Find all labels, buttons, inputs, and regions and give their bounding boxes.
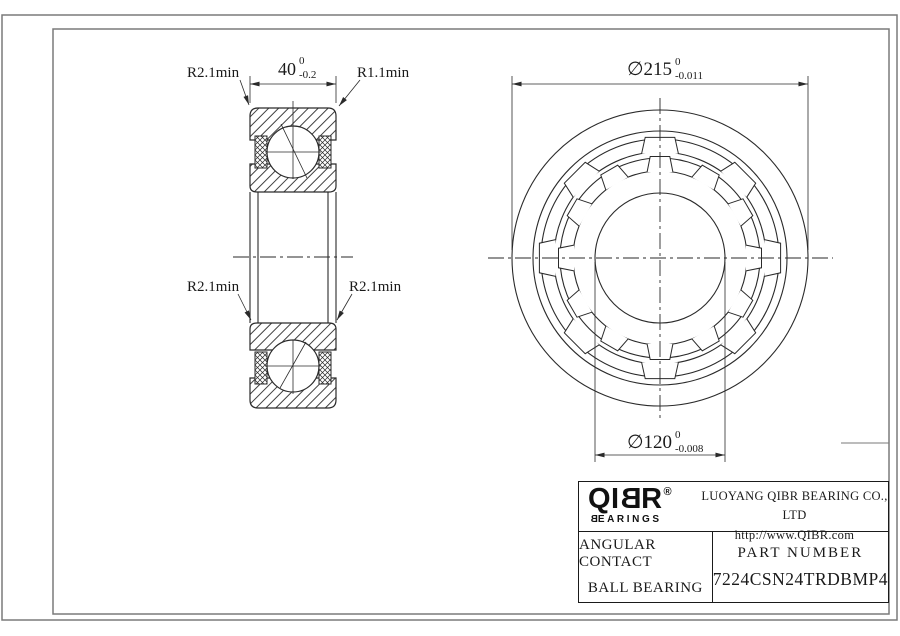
- cage-bottom-left: [255, 352, 267, 384]
- logo-cell: QIBR® BEARINGS: [579, 482, 701, 531]
- width-dimension: 40 0 -0.2: [250, 55, 336, 103]
- qibr-logo-sub: BEARINGS: [588, 514, 701, 525]
- od-dim-tol-lower: -0.011: [675, 70, 703, 82]
- label-r-mid-left: R2.1min: [187, 279, 240, 295]
- drawing-sheet: 40 0 -0.2 R2.1min R1.1min R2.1min R2.1mi…: [0, 0, 900, 636]
- part-number-label: PART NUMBER: [738, 545, 864, 562]
- part-number-value: 7224CSN24TRDBMP4: [713, 569, 888, 590]
- cage-pocket: [601, 165, 628, 190]
- title-block-top-row: QIBR® BEARINGS LUOYANG QIBR BEARING CO.,…: [579, 482, 888, 532]
- od-dim-value: ∅215: [627, 59, 672, 80]
- cage-pocket: [692, 326, 719, 351]
- width-dim-tol-lower: -0.2: [299, 69, 316, 81]
- width-dim-value: 40: [278, 59, 296, 79]
- cage-pocket: [721, 319, 756, 354]
- od-dim-tol-upper: 0: [675, 56, 681, 68]
- cage-pocket: [564, 162, 599, 197]
- label-r-mid-right: R2.1min: [349, 279, 402, 295]
- cage-pocket: [728, 290, 753, 317]
- bore-lines: [250, 192, 336, 323]
- cage-pocket: [721, 162, 756, 197]
- bore-dim-tol-upper: 0: [675, 429, 681, 441]
- cage-pocket: [728, 199, 753, 226]
- product-type-line2: BALL BEARING: [588, 580, 703, 597]
- product-cell: ANGULAR CONTACT BALL BEARING: [579, 532, 713, 602]
- label-r-top-left: R2.1min: [187, 65, 240, 81]
- part-number-cell: PART NUMBER 7224CSN24TRDBMP4: [713, 532, 888, 602]
- width-dim-tol-upper: 0: [299, 55, 305, 67]
- cross-section-view: 40 0 -0.2 R2.1min R1.1min R2.1min R2.1mi…: [187, 55, 410, 408]
- title-block: QIBR® BEARINGS LUOYANG QIBR BEARING CO.,…: [578, 481, 889, 603]
- cage-pocket: [567, 199, 592, 226]
- product-type-line1: ANGULAR CONTACT: [579, 537, 712, 571]
- qibr-logo: QIBR®: [588, 485, 701, 514]
- cage-pocket: [601, 326, 628, 351]
- bore-dim-tol-lower: -0.008: [675, 443, 704, 455]
- cage-pocket: [692, 165, 719, 190]
- company-cell: LUOYANG QIBR BEARING CO., LTD http://www…: [701, 482, 888, 531]
- bore-dim-value: ∅120: [627, 432, 672, 453]
- title-block-bottom-row: ANGULAR CONTACT BALL BEARING PART NUMBER…: [579, 532, 888, 602]
- cage-bottom-right: [319, 352, 331, 384]
- registered-mark: ®: [664, 486, 673, 498]
- front-view: ∅215 0 -0.011 ∅120 0 -0.008: [488, 56, 833, 462]
- cage-pocket: [564, 319, 599, 354]
- company-name: LUOYANG QIBR BEARING CO., LTD: [701, 487, 888, 526]
- cage-pocket: [567, 290, 592, 317]
- label-r-top-right: R1.1min: [357, 65, 410, 81]
